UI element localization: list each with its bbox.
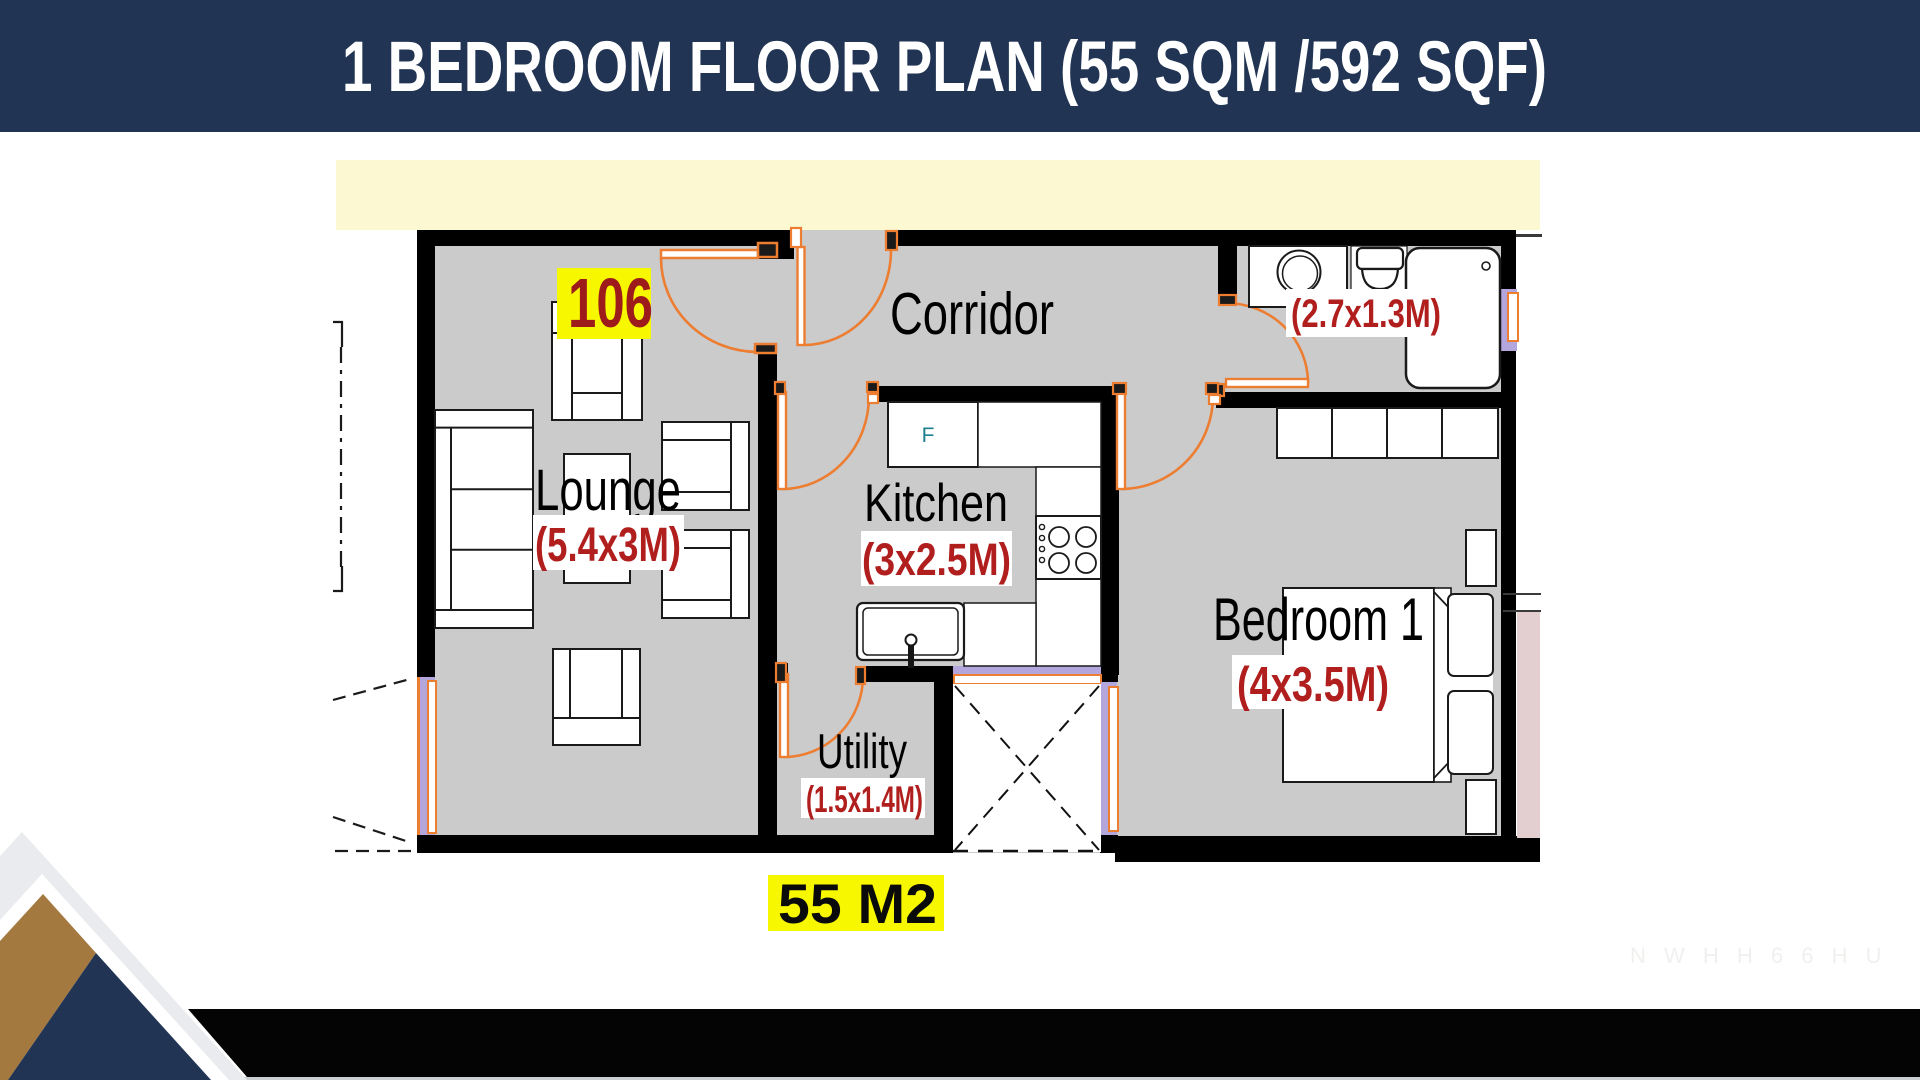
svg-text:(3x2.5M): (3x2.5M) — [862, 534, 1011, 585]
svg-text:(4x3.5M): (4x3.5M) — [1237, 658, 1389, 712]
svg-text:Bedroom 1: Bedroom 1 — [1213, 586, 1424, 653]
svg-text:106: 106 — [568, 264, 653, 342]
svg-text:1 BEDROOM FLOOR PLAN (55 SQM /: 1 BEDROOM FLOOR PLAN (55 SQM /592 SQF) — [342, 28, 1547, 107]
svg-text:(1.5x1.4M): (1.5x1.4M) — [806, 779, 923, 820]
svg-text:F: F — [922, 424, 935, 447]
svg-text:55 M2: 55 M2 — [778, 872, 937, 935]
svg-text:Kitchen: Kitchen — [864, 474, 1008, 533]
svg-text:N W H H 6 6 H U: N W H H 6 6 H U — [1630, 943, 1887, 968]
svg-text:(5.4x3M): (5.4x3M) — [535, 519, 681, 572]
svg-text:Corridor: Corridor — [890, 281, 1054, 347]
svg-text:(2.7x1.3M): (2.7x1.3M) — [1291, 292, 1441, 336]
svg-text:Utility: Utility — [817, 725, 907, 779]
svg-text:Lounge: Lounge — [535, 458, 681, 523]
